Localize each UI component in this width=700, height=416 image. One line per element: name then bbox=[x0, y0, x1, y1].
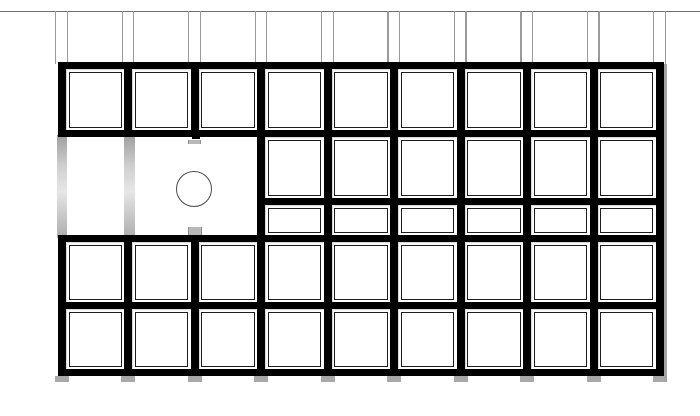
hanger-line bbox=[255, 11, 256, 64]
panel-inner-frame bbox=[534, 312, 588, 367]
panel-cell bbox=[598, 205, 656, 235]
panel-inner-frame bbox=[534, 140, 588, 196]
panel-inner-frame bbox=[401, 72, 455, 128]
support-foot bbox=[520, 376, 534, 382]
panel-cell bbox=[398, 309, 457, 369]
panel-grid-drawing bbox=[0, 0, 700, 416]
support-foot bbox=[454, 376, 468, 382]
panel-inner-frame bbox=[201, 312, 254, 367]
support-foot bbox=[188, 376, 202, 382]
hanger-line bbox=[532, 11, 533, 64]
mullion-tick bbox=[188, 227, 202, 236]
panel-row-row-3 bbox=[58, 235, 664, 309]
panel-inner-frame bbox=[600, 140, 653, 196]
panel-inner-frame bbox=[534, 245, 588, 300]
panel-inner-frame bbox=[334, 208, 387, 233]
hanger-line bbox=[387, 11, 388, 64]
panel-cell bbox=[465, 205, 523, 235]
hanger-line bbox=[454, 11, 455, 64]
hanger-line bbox=[465, 11, 466, 64]
panel-inner-frame bbox=[467, 72, 520, 128]
panel-cell bbox=[265, 242, 324, 302]
panel-inner-frame bbox=[334, 72, 387, 128]
panel-cell bbox=[531, 69, 590, 130]
panel-cell bbox=[132, 69, 191, 130]
panel-cell bbox=[465, 242, 523, 302]
panel-inner-frame bbox=[268, 140, 322, 196]
panel-cell bbox=[398, 69, 457, 130]
panel-cell bbox=[465, 137, 523, 198]
panel-cell bbox=[531, 205, 590, 235]
panel-inner-frame bbox=[467, 245, 520, 300]
panel-cell bbox=[531, 309, 590, 369]
panel-cell bbox=[598, 69, 656, 130]
hanger-line bbox=[399, 11, 400, 64]
hanger-line bbox=[653, 11, 654, 64]
panel-inner-frame bbox=[600, 72, 653, 128]
panel-row-row-2-upper bbox=[257, 130, 664, 205]
panel-inner-frame bbox=[135, 245, 189, 300]
panel-cell bbox=[199, 309, 257, 369]
ghost-column-bar bbox=[124, 135, 135, 238]
panel-cell bbox=[265, 137, 324, 198]
hanger-line bbox=[200, 11, 201, 64]
panel-cell bbox=[332, 242, 390, 302]
panel-inner-frame bbox=[69, 312, 122, 367]
panel-cell bbox=[132, 242, 191, 302]
support-foot bbox=[55, 376, 69, 382]
mullion-tick bbox=[188, 140, 201, 145]
panel-inner-frame bbox=[135, 312, 189, 367]
support-foot bbox=[254, 376, 268, 382]
panel-cell bbox=[398, 205, 457, 235]
hanger-line bbox=[55, 11, 56, 64]
panel-inner-frame bbox=[600, 245, 653, 300]
panel-inner-frame bbox=[334, 312, 387, 367]
right-edge-shadow bbox=[664, 64, 668, 381]
hanger-line bbox=[333, 11, 334, 64]
panel-inner-frame bbox=[268, 72, 322, 128]
panel-inner-frame bbox=[201, 72, 254, 128]
support-foot bbox=[121, 376, 135, 382]
panel-cell bbox=[598, 242, 656, 302]
panel-cell bbox=[199, 242, 257, 302]
hanger-line bbox=[598, 11, 599, 64]
hanger-line bbox=[122, 11, 123, 64]
panel-inner-frame bbox=[467, 312, 520, 367]
hanger-line bbox=[266, 11, 267, 64]
panel-inner-frame bbox=[135, 72, 189, 128]
panel-inner-frame bbox=[600, 208, 653, 233]
panel-cell bbox=[66, 309, 124, 369]
panel-cell bbox=[465, 69, 523, 130]
panel-inner-frame bbox=[69, 245, 122, 300]
panel-cell bbox=[265, 69, 324, 130]
panel-inner-frame bbox=[401, 208, 455, 233]
panel-cell bbox=[598, 309, 656, 369]
panel-cell bbox=[66, 69, 124, 130]
panel-inner-frame bbox=[268, 208, 322, 233]
panel-cell bbox=[132, 309, 191, 369]
support-foot bbox=[387, 376, 401, 382]
panel-row-row-1 bbox=[58, 62, 664, 137]
panel-inner-frame bbox=[467, 208, 520, 233]
panel-row-row-4 bbox=[58, 302, 664, 376]
panel-cell bbox=[465, 309, 523, 369]
panel-inner-frame bbox=[401, 140, 455, 196]
panel-inner-frame bbox=[268, 312, 322, 367]
panel-cell bbox=[199, 69, 257, 130]
hanger-line bbox=[67, 11, 68, 64]
panel-cell bbox=[598, 137, 656, 198]
panel-inner-frame bbox=[600, 312, 653, 367]
hanger-line bbox=[133, 11, 134, 64]
support-foot bbox=[587, 376, 601, 382]
panel-inner-frame bbox=[334, 140, 387, 196]
hanger-line bbox=[321, 11, 322, 64]
hanger-line bbox=[188, 11, 189, 64]
panel-inner-frame bbox=[401, 245, 455, 300]
panel-cell bbox=[332, 137, 390, 198]
panel-inner-frame bbox=[401, 312, 455, 367]
panel-cell bbox=[265, 205, 324, 235]
panel-cell bbox=[332, 205, 390, 235]
panel-inner-frame bbox=[467, 140, 520, 196]
panel-cell bbox=[332, 309, 390, 369]
panel-cell bbox=[66, 242, 124, 302]
hanger-line bbox=[587, 11, 588, 64]
hanger-line bbox=[520, 11, 521, 64]
panel-inner-frame bbox=[534, 72, 588, 128]
panel-inner-frame bbox=[268, 245, 322, 300]
panel-inner-frame bbox=[201, 245, 254, 300]
panel-cell bbox=[531, 242, 590, 302]
hanger-line bbox=[665, 11, 666, 64]
panel-cell bbox=[531, 137, 590, 198]
ceiling-line bbox=[0, 11, 700, 12]
panel-inner-frame bbox=[69, 72, 122, 128]
support-foot bbox=[321, 376, 335, 382]
panel-inner-frame bbox=[334, 245, 387, 300]
panel-cell bbox=[398, 137, 457, 198]
panel-cell bbox=[265, 309, 324, 369]
panel-cell bbox=[398, 242, 457, 302]
ghost-column-bar bbox=[57, 135, 67, 238]
panel-cell bbox=[332, 69, 390, 130]
circle-marker bbox=[176, 171, 212, 207]
panel-inner-frame bbox=[534, 208, 588, 233]
